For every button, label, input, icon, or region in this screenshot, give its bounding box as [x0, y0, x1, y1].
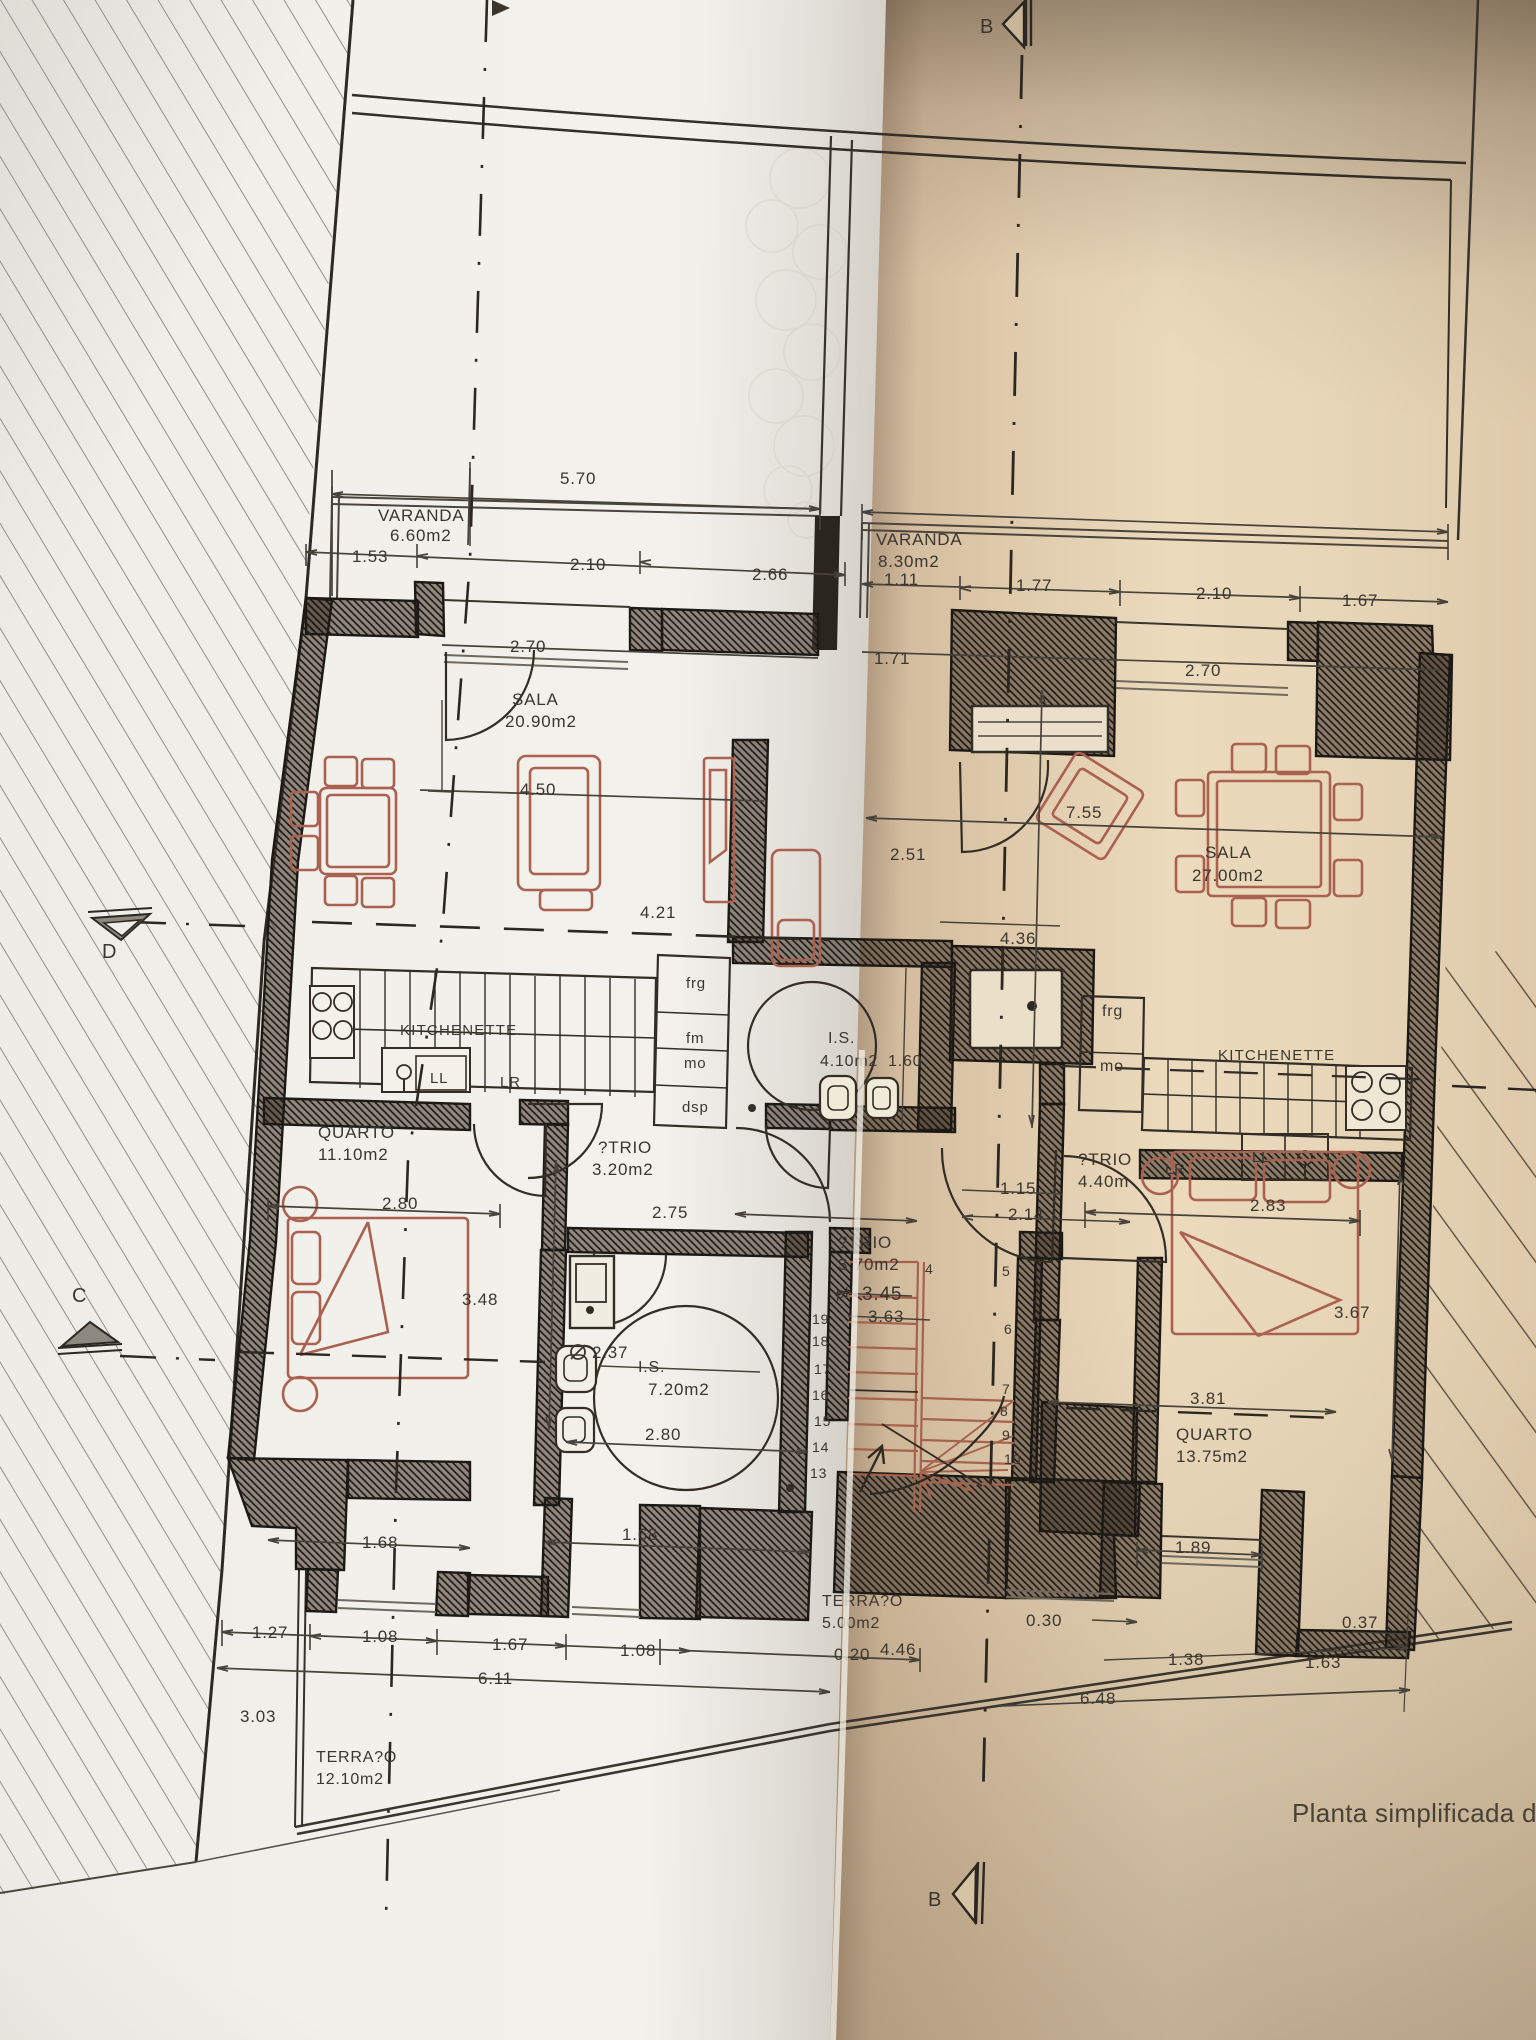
svg-text:5.70: 5.70 [560, 469, 596, 488]
svg-text:6.60m2: 6.60m2 [390, 526, 452, 545]
svg-text:4.21: 4.21 [640, 903, 676, 922]
svg-text:18: 18 [812, 1333, 829, 1349]
svg-text:9: 9 [1002, 1427, 1011, 1443]
svg-text:pl: pl [836, 1285, 849, 1302]
svg-text:1.11: 1.11 [884, 570, 919, 589]
svg-text:27.00m2: 27.00m2 [1192, 866, 1264, 885]
svg-text:frg: frg [686, 975, 706, 992]
svg-text:C: C [72, 1285, 87, 1307]
svg-text:1.27: 1.27 [252, 1623, 288, 1642]
svg-text:I.S.: I.S. [828, 1030, 855, 1047]
svg-text:4.50: 4.50 [520, 780, 556, 799]
svg-text:3.63: 3.63 [868, 1307, 904, 1326]
svg-text:4.46: 4.46 [880, 1640, 916, 1659]
svg-text:11.10m2: 11.10m2 [318, 1145, 389, 1164]
svg-text:B: B [980, 16, 994, 38]
svg-text:mo: mo [684, 1055, 706, 1072]
svg-text:LR: LR [500, 1074, 521, 1091]
svg-text:Planta simplificada de: Planta simplificada de [1292, 1798, 1536, 1828]
svg-text:2.70: 2.70 [510, 637, 546, 656]
svg-text:1.68: 1.68 [362, 1533, 398, 1552]
svg-text:?TRIO: ?TRIO [1078, 1150, 1132, 1169]
svg-text:3.48: 3.48 [462, 1290, 498, 1309]
svg-text:2.14: 2.14 [1008, 1205, 1044, 1224]
svg-text:14: 14 [812, 1439, 829, 1455]
svg-text:1.67: 1.67 [492, 1635, 528, 1654]
svg-text:TERRA?O: TERRA?O [822, 1593, 903, 1610]
svg-text:2.83: 2.83 [1250, 1196, 1286, 1215]
svg-text:5.00m2: 5.00m2 [822, 1615, 880, 1632]
svg-text:2.80: 2.80 [382, 1194, 418, 1213]
svg-text:1.08: 1.08 [620, 1641, 656, 1660]
svg-text:1.89: 1.89 [1175, 1538, 1211, 1557]
svg-text:17: 17 [814, 1361, 831, 1377]
svg-text:7.55: 7.55 [1066, 803, 1102, 822]
svg-text:6.11: 6.11 [478, 1669, 513, 1688]
svg-text:LL: LL [1252, 1149, 1270, 1166]
svg-text:LL: LL [430, 1070, 448, 1087]
svg-text:6: 6 [1004, 1321, 1013, 1337]
svg-text:13.75m2: 13.75m2 [1176, 1447, 1248, 1466]
svg-text:4.36: 4.36 [1000, 929, 1036, 948]
svg-text:2.10: 2.10 [570, 555, 606, 574]
svg-text:1.15: 1.15 [1000, 1179, 1036, 1198]
svg-text:6.48: 6.48 [1080, 1689, 1116, 1708]
svg-text:8: 8 [1000, 1403, 1009, 1419]
svg-text:1.08: 1.08 [362, 1627, 398, 1646]
svg-text:B: B [928, 1889, 942, 1911]
svg-text:13: 13 [810, 1465, 827, 1481]
svg-text:KITCHENETTE: KITCHENETTE [1218, 1047, 1335, 1064]
svg-text:12.10m2: 12.10m2 [316, 1771, 384, 1788]
svg-text:7.20m2: 7.20m2 [648, 1380, 710, 1399]
svg-text:3.20m2: 3.20m2 [592, 1160, 654, 1179]
svg-text:fm: fm [686, 1030, 704, 1047]
svg-text:1.67: 1.67 [1342, 591, 1378, 610]
svg-text:dsp: dsp [682, 1099, 709, 1116]
svg-text:1.38: 1.38 [1168, 1650, 1204, 1669]
svg-text:SALA: SALA [1205, 843, 1252, 862]
svg-text:2.10: 2.10 [1196, 584, 1232, 603]
svg-text:15: 15 [814, 1413, 831, 1429]
svg-text:1.60: 1.60 [888, 1053, 922, 1070]
svg-text:?TRIO: ?TRIO [838, 1233, 892, 1252]
svg-text:7: 7 [1002, 1381, 1011, 1397]
svg-text:1.77: 1.77 [1016, 576, 1052, 595]
svg-text:2.80: 2.80 [645, 1425, 681, 1444]
svg-text:8.30m2: 8.30m2 [878, 552, 940, 571]
svg-text:3.70m2: 3.70m2 [838, 1255, 900, 1274]
svg-text:0.30: 0.30 [1026, 1611, 1062, 1630]
svg-text:3.67: 3.67 [1334, 1303, 1370, 1322]
svg-text:4.10m2: 4.10m2 [820, 1053, 878, 1070]
svg-text:frg: frg [1102, 1003, 1123, 1020]
svg-text:1.68: 1.68 [622, 1525, 658, 1544]
svg-text:QUARTO: QUARTO [318, 1123, 395, 1142]
svg-text:1.71: 1.71 [874, 649, 910, 668]
svg-text:3.45: 3.45 [862, 1284, 902, 1305]
svg-text:mo: mo [1100, 1058, 1124, 1075]
svg-text:1.63: 1.63 [1305, 1653, 1341, 1672]
svg-text:VARANDA: VARANDA [378, 506, 465, 525]
svg-text:16: 16 [812, 1387, 829, 1403]
svg-text:1.53: 1.53 [352, 547, 388, 566]
svg-text:0.20: 0.20 [834, 1645, 870, 1664]
svg-text:4: 4 [925, 1261, 934, 1277]
svg-text:10: 10 [1004, 1451, 1021, 1467]
svg-text:4.40m: 4.40m [1078, 1172, 1129, 1191]
svg-text:3.03: 3.03 [240, 1707, 276, 1726]
svg-text:20.90m2: 20.90m2 [505, 712, 577, 731]
svg-text:0.37: 0.37 [1342, 1613, 1378, 1632]
svg-text:2.75: 2.75 [652, 1203, 688, 1222]
svg-text:3.81: 3.81 [1190, 1389, 1226, 1408]
svg-text:KITCHENETTE: KITCHENETTE [400, 1022, 517, 1039]
svg-text:TERRA?O: TERRA?O [316, 1749, 397, 1766]
svg-text:I.S.: I.S. [638, 1359, 665, 1376]
svg-text:QUARTO: QUARTO [1176, 1425, 1253, 1444]
svg-text:VARANDA: VARANDA [876, 530, 963, 549]
svg-text:D: D [102, 941, 117, 963]
svg-text:2.70: 2.70 [1185, 661, 1221, 680]
svg-text:2.66: 2.66 [752, 565, 788, 584]
svg-text:2.51: 2.51 [890, 845, 926, 864]
svg-text:19: 19 [812, 1311, 829, 1327]
svg-text:2.37: 2.37 [592, 1343, 628, 1362]
svg-text:?TRIO: ?TRIO [598, 1138, 652, 1157]
svg-text:LR: LR [1165, 1161, 1186, 1178]
svg-text:SALA: SALA [512, 690, 559, 709]
svg-text:5: 5 [1002, 1263, 1011, 1279]
